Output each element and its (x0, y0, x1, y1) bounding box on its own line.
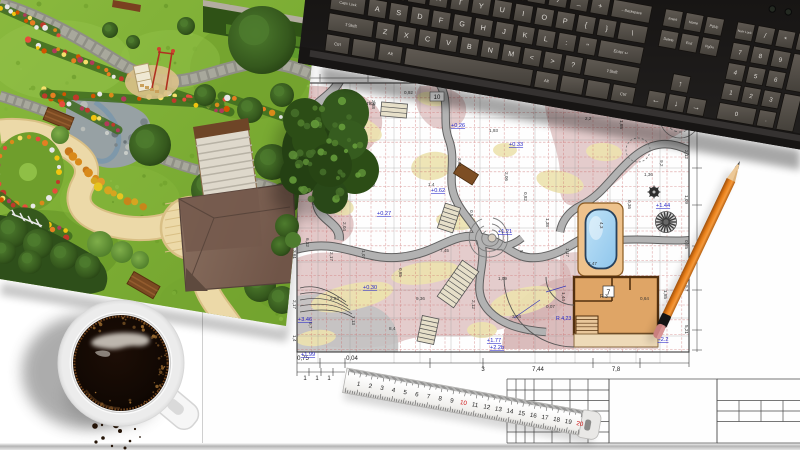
svg-text:2,04: 2,04 (342, 222, 347, 231)
svg-text:0,07: 0,07 (546, 304, 555, 309)
svg-text:1,4: 1,4 (292, 335, 297, 342)
svg-text:5,21: 5,21 (684, 325, 689, 334)
svg-text:+1.77: +1.77 (487, 338, 501, 344)
svg-text:9,7: 9,7 (308, 322, 313, 329)
svg-text:0,85: 0,85 (398, 268, 403, 277)
svg-text:0,82: 0,82 (523, 192, 528, 201)
svg-text:2,84: 2,84 (330, 296, 339, 301)
svg-text:1,09: 1,09 (684, 195, 689, 204)
svg-text:+0.30: +0.30 (363, 285, 377, 291)
svg-text:End: End (686, 41, 693, 46)
svg-text:3,04: 3,04 (512, 314, 521, 319)
svg-text:7,44: 7,44 (532, 367, 544, 373)
svg-text:+2.2b: +2.2b (490, 345, 504, 351)
svg-text:4,3: 4,3 (599, 222, 604, 229)
svg-text:S: S (396, 8, 402, 18)
svg-text:+1.99: +1.99 (301, 352, 315, 358)
svg-text:Ctrl: Ctrl (619, 91, 626, 97)
svg-text:7,45: 7,45 (440, 248, 449, 253)
svg-text:M: M (508, 50, 515, 59)
svg-text:0,85: 0,85 (684, 240, 689, 249)
svg-text:2,12: 2,12 (684, 150, 689, 159)
svg-text:R 3: R 3 (600, 294, 608, 300)
svg-text:C: C (424, 35, 430, 44)
svg-text:R 4,23: R 4,23 (556, 316, 571, 322)
svg-text:+1.21: +1.21 (498, 229, 512, 235)
svg-text:7,13: 7,13 (351, 316, 356, 325)
svg-text:0,04: 0,04 (346, 356, 358, 362)
svg-text:2,17: 2,17 (329, 252, 334, 261)
svg-text:+0.62: +0.62 (431, 188, 445, 194)
svg-text:+0.33: +0.33 (509, 142, 523, 148)
svg-text:1,09: 1,09 (498, 276, 507, 281)
svg-text:+1.44: +1.44 (656, 203, 670, 209)
svg-text:9,36: 9,36 (416, 296, 425, 301)
svg-text:+0.26: +0.26 (451, 123, 465, 129)
svg-text:3,61: 3,61 (457, 158, 462, 167)
svg-text:+3.46: +3.46 (298, 317, 312, 323)
svg-text:0,36: 0,36 (627, 200, 632, 209)
svg-text:1,36: 1,36 (644, 172, 653, 177)
svg-text:1,07: 1,07 (361, 250, 366, 259)
svg-text:1,17: 1,17 (565, 248, 570, 257)
svg-text:6,32: 6,32 (305, 238, 310, 247)
svg-text:5: 5 (519, 250, 524, 253)
svg-text:8,4: 8,4 (389, 326, 396, 331)
svg-text:2,47: 2,47 (588, 261, 597, 266)
svg-text:0,5: 0,5 (469, 210, 474, 217)
svg-text:1,93: 1,93 (489, 128, 498, 133)
svg-text:+0.27: +0.27 (377, 211, 391, 217)
svg-text:2,17: 2,17 (292, 300, 297, 309)
svg-text:1,4: 1,4 (428, 182, 435, 187)
svg-text:0,64: 0,64 (640, 296, 649, 301)
svg-text:>: > (550, 58, 555, 66)
svg-text:9,2: 9,2 (659, 160, 664, 167)
svg-text:rice: rice (367, 101, 376, 107)
svg-text:Ctrl: Ctrl (334, 41, 341, 47)
svg-text:7,8: 7,8 (612, 367, 621, 373)
svg-text:1,44: 1,44 (561, 292, 566, 301)
svg-text:2,06: 2,06 (504, 172, 509, 181)
svg-text:2,12: 2,12 (471, 300, 476, 309)
svg-text:1,38: 1,38 (545, 218, 550, 227)
svg-text:A: A (374, 4, 380, 14)
svg-text:←: ← (651, 95, 661, 105)
